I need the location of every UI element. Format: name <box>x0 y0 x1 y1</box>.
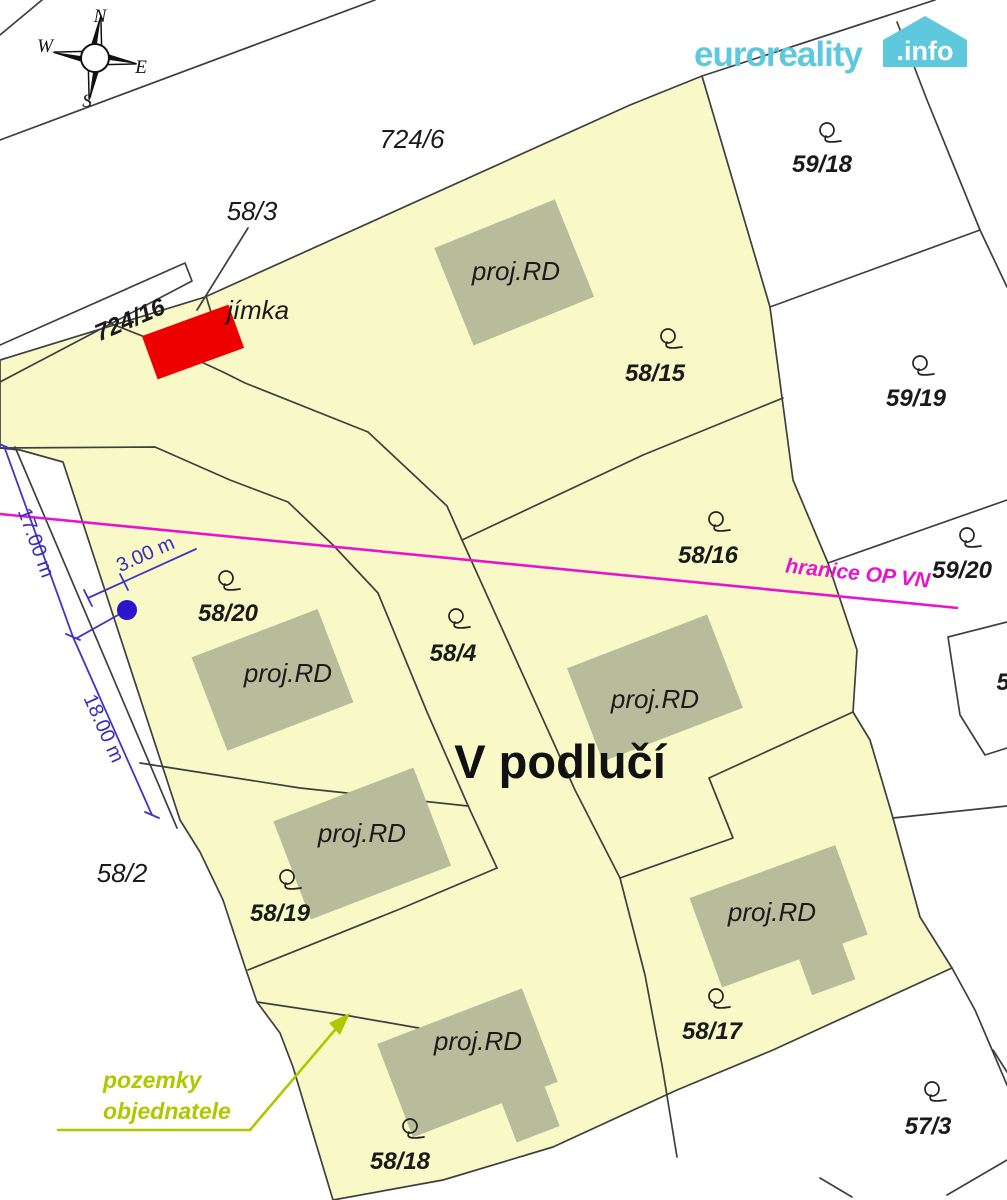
parcel-label-58-2: 58/2 <box>97 858 148 888</box>
parcel-label-59-20: 59/20 <box>932 557 993 584</box>
parcel-label-724-6: 724/6 <box>379 124 445 154</box>
locality-title: V podlučí <box>454 735 667 788</box>
compass-rose: N W E S <box>37 6 147 112</box>
parcel-label-59-19: 59/19 <box>886 385 947 412</box>
tree-symbol <box>820 123 841 142</box>
tree-symbol <box>960 528 981 547</box>
dim-17m-label: 17.00 m <box>13 505 58 580</box>
boundary-bottom-2 <box>947 1160 1007 1195</box>
parcel-label-58-15: 58/15 <box>625 360 686 387</box>
parcel-label-58-20: 58/20 <box>198 600 259 627</box>
boundary-59-18-59-19 <box>770 230 980 307</box>
parcel-label-59-18: 59/18 <box>792 151 853 178</box>
compass-e: E <box>134 57 147 78</box>
tree-symbol <box>913 356 934 375</box>
building-label: proj.RD <box>243 658 332 688</box>
boundary-right-horizontal <box>893 806 1007 818</box>
building-label: proj.RD <box>471 256 560 286</box>
dim-18m-label: 18.00 m <box>79 691 128 766</box>
compass-n: N <box>93 6 108 27</box>
jimka-label: jímka <box>224 295 289 325</box>
boundary-bottomright-1 <box>952 968 1007 1085</box>
logo-brand-text: euroreality <box>694 35 863 74</box>
map-canvas: proj.RD proj.RD proj.RD proj.RD proj.RD … <box>0 0 1007 1200</box>
parcel-label-58-4: 58/4 <box>430 640 477 667</box>
boundary-topleft-small <box>0 0 42 35</box>
parcel-label-57-3: 57/3 <box>905 1113 952 1140</box>
parcel-label-58-18: 58/18 <box>370 1148 431 1175</box>
parcel-label-5-partial: 5 <box>996 669 1007 696</box>
cadastral-map: proj.RD proj.RD proj.RD proj.RD proj.RD … <box>0 0 1007 1200</box>
compass-w: W <box>37 36 55 57</box>
compass-s: S <box>82 91 92 112</box>
boundary-topleft-corner <box>0 0 375 140</box>
building-label: proj.RD <box>727 897 816 927</box>
building-label: proj.RD <box>610 684 699 714</box>
parcel-label-58-17: 58/17 <box>682 1018 744 1045</box>
logo-badge-text: .info <box>897 36 954 66</box>
building-label: proj.RD <box>433 1026 522 1056</box>
dim-tick <box>84 590 92 606</box>
building-label: proj.RD <box>317 818 406 848</box>
pozemky-label-line1: pozemky <box>102 1067 203 1093</box>
reference-point-dot <box>117 600 137 620</box>
parcel-label-58-19: 58/19 <box>250 900 311 927</box>
parcel-label-58-3: 58/3 <box>227 196 278 226</box>
boundary-bottom-1 <box>820 1178 852 1197</box>
tree-symbol <box>925 1082 946 1101</box>
boundary-59-19-59-20 <box>828 500 1007 563</box>
logo: euroreality .info <box>694 16 967 74</box>
pozemky-label-line2: objednatele <box>103 1098 231 1124</box>
parcel-label-58-16: 58/16 <box>678 542 739 569</box>
